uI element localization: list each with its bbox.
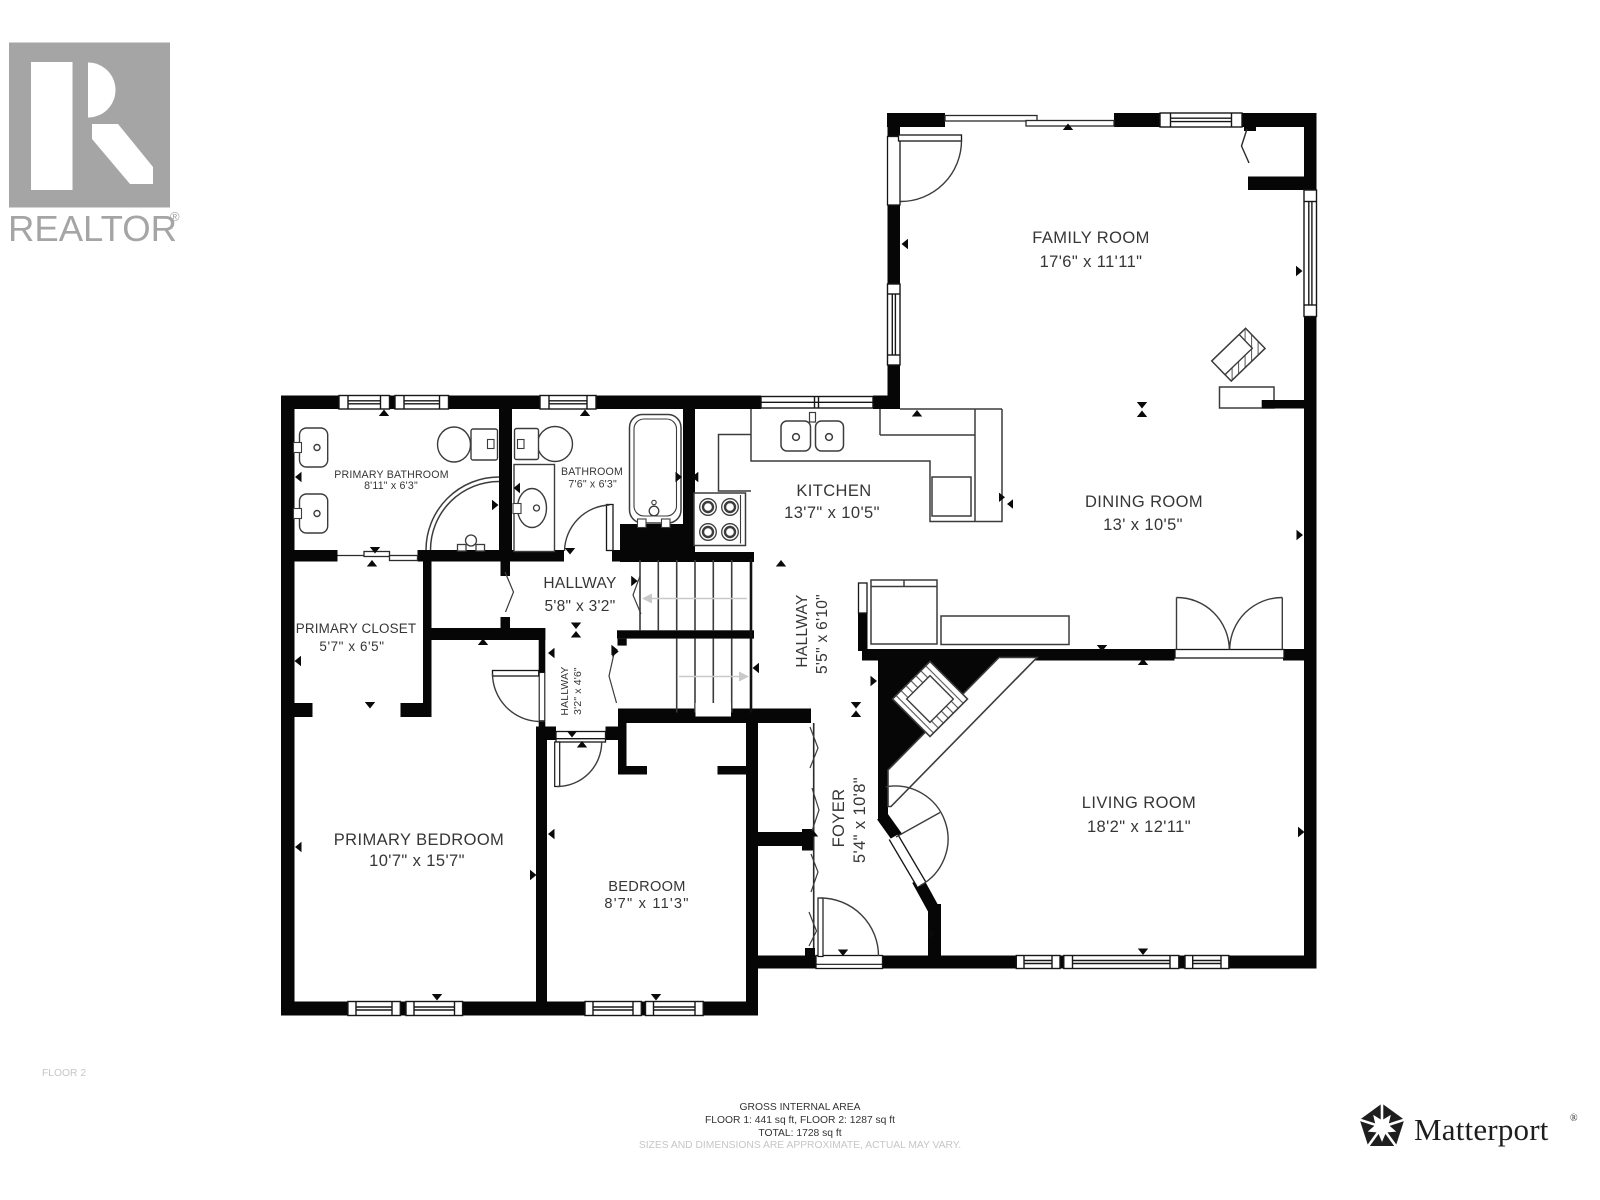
svg-text:13'7" x 10'5": 13'7" x 10'5" xyxy=(784,504,880,522)
svg-text:®: ® xyxy=(1570,1113,1578,1124)
svg-text:HALLWAY: HALLWAY xyxy=(560,666,571,715)
svg-text:PRIMARY CLOSET: PRIMARY CLOSET xyxy=(296,621,417,636)
svg-text:FAMILY ROOM: FAMILY ROOM xyxy=(1032,229,1149,247)
svg-text:LIVING ROOM: LIVING ROOM xyxy=(1082,794,1196,812)
svg-text:10'7" x 15'7": 10'7" x 15'7" xyxy=(369,852,465,870)
svg-text:7'6" x 6'3": 7'6" x 6'3" xyxy=(568,479,617,491)
svg-text:KITCHEN: KITCHEN xyxy=(796,482,871,500)
svg-text:PRIMARY BEDROOM: PRIMARY BEDROOM xyxy=(334,831,504,849)
svg-text:HALLWAY: HALLWAY xyxy=(543,575,616,592)
svg-text:5'8" x 3'2": 5'8" x 3'2" xyxy=(544,598,615,615)
svg-text:HALLWAY: HALLWAY xyxy=(794,594,811,667)
svg-text:TOTAL: 1728 sq ft: TOTAL: 1728 sq ft xyxy=(758,1128,841,1139)
svg-text:5'7" x 6'5": 5'7" x 6'5" xyxy=(319,639,384,654)
svg-text:®: ® xyxy=(170,209,180,224)
svg-text:DINING ROOM: DINING ROOM xyxy=(1085,493,1203,511)
svg-text:8'11" x 6'3": 8'11" x 6'3" xyxy=(364,480,418,492)
svg-text:GROSS INTERNAL AREA: GROSS INTERNAL AREA xyxy=(740,1102,861,1113)
svg-text:17'6" x 11'11": 17'6" x 11'11" xyxy=(1040,253,1143,271)
svg-text:FLOOR 2: FLOOR 2 xyxy=(42,1068,86,1079)
svg-text:REALTOR: REALTOR xyxy=(8,208,177,249)
svg-text:FOYER: FOYER xyxy=(830,789,848,848)
svg-text:FLOOR 1: 441 sq ft, FLOOR 2: 1: FLOOR 1: 441 sq ft, FLOOR 2: 1287 sq ft xyxy=(705,1115,895,1126)
svg-text:SIZES AND DIMENSIONS ARE APPRO: SIZES AND DIMENSIONS ARE APPROXIMATE, AC… xyxy=(639,1140,961,1151)
svg-text:8'7" x 11'3": 8'7" x 11'3" xyxy=(604,896,689,912)
svg-text:BEDROOM: BEDROOM xyxy=(608,879,686,895)
svg-text:5'4" x 10'8": 5'4" x 10'8" xyxy=(851,777,869,863)
svg-text:3'2" x 4'6": 3'2" x 4'6" xyxy=(573,667,584,715)
svg-text:13' x 10'5": 13' x 10'5" xyxy=(1103,516,1183,534)
svg-text:BATHROOM: BATHROOM xyxy=(561,466,623,478)
svg-text:Matterport: Matterport xyxy=(1414,1112,1549,1147)
svg-text:5'5" x 6'10": 5'5" x 6'10" xyxy=(814,594,831,674)
svg-text:18'2" x 12'11": 18'2" x 12'11" xyxy=(1087,818,1191,836)
